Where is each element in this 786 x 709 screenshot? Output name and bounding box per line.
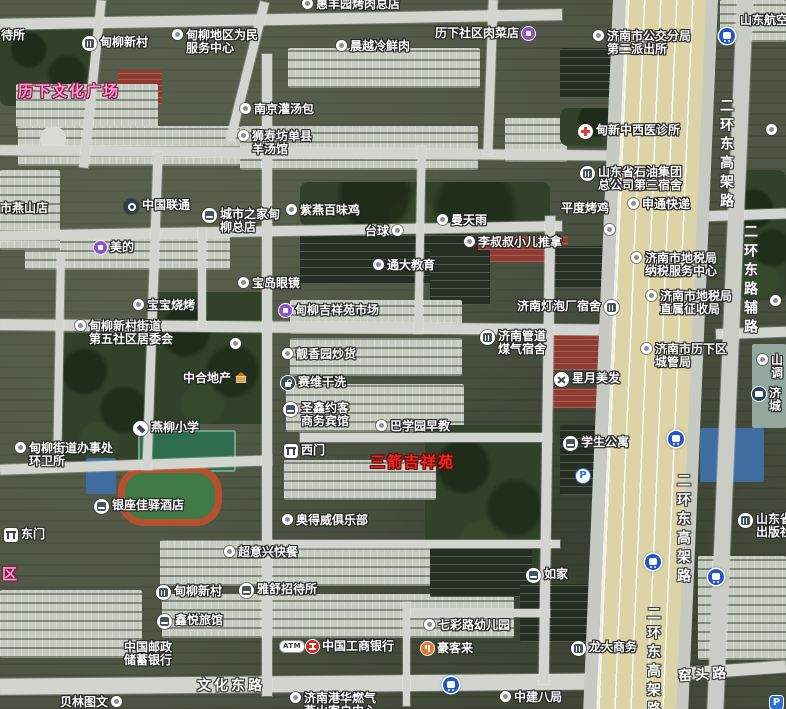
map-poi[interactable]: 豪客来	[421, 642, 473, 655]
map-poi[interactable]: 济南灯泡厂宿舍	[517, 300, 619, 315]
map-poi[interactable]: 赛维干洗	[281, 376, 346, 390]
building-icon	[82, 36, 97, 51]
map-poi[interactable]: 东门	[4, 528, 45, 542]
poi-dot-icon	[240, 103, 251, 114]
poi-label: 东门	[21, 528, 45, 541]
area-label: 历下文化广场	[18, 80, 120, 101]
poi-label: 济南市历下区城管局	[655, 343, 727, 369]
map-poi[interactable]: 山东航空	[740, 14, 786, 27]
map-poi[interactable]: 甸柳吉祥苑市场	[279, 304, 379, 317]
map-poi[interactable]: 济南市地税局直属征收局	[646, 290, 732, 316]
poi-dot-icon	[290, 692, 301, 703]
poi-label: 中国邮政储蓄银行	[124, 641, 172, 667]
map-poi[interactable]: 市燕山店	[0, 202, 48, 215]
map-poi[interactable]: 山东省石油集团总公司第三宿舍	[580, 166, 682, 192]
atm-badge-icon: ATM	[280, 641, 304, 652]
poi-dot-icon	[631, 252, 642, 263]
map-poi[interactable]: 中建八局	[500, 691, 562, 704]
map-poi[interactable]: 中国工商银行	[306, 640, 394, 653]
metro-station-icon	[708, 569, 724, 585]
road-segment	[408, 609, 550, 617]
map-poi[interactable]: 学生公寓	[563, 436, 629, 451]
map-poi[interactable]: 西门	[284, 444, 325, 458]
laundry-bag-icon	[281, 376, 295, 390]
poi-label: 狮寿坊单县羊汤馆	[252, 130, 312, 156]
map-poi[interactable]	[719, 28, 735, 44]
hotel-icon	[239, 583, 254, 598]
map-poi[interactable]: 济南市地税局纳税服务中心	[631, 252, 717, 278]
map-poi[interactable]	[645, 554, 661, 570]
poi-dot-icon	[133, 299, 144, 310]
poi-label: 城市之家甸柳总店	[220, 208, 280, 234]
poi-label: 豪客来	[437, 642, 473, 655]
map-poi[interactable]: 甸柳街道办事处环卫所	[15, 442, 113, 468]
building-icon	[571, 641, 586, 656]
metro-station-icon	[443, 677, 459, 693]
map-poi[interactable]: P	[770, 696, 783, 709]
map-poi[interactable]: 雅舒招待所	[239, 583, 317, 598]
map-poi[interactable]: 甸柳新村街道第五社区居委会	[75, 320, 173, 346]
map-poi[interactable]: 山东省出版社	[738, 513, 786, 539]
poi-label: 甸新中西医诊所	[596, 124, 680, 137]
poi-dot-icon	[376, 420, 387, 431]
road-segment	[300, 433, 552, 442]
poi-dot-icon	[282, 514, 293, 525]
shop-icon	[94, 241, 107, 254]
area-label: 三箭吉祥苑	[370, 451, 455, 472]
building-icon	[738, 513, 753, 528]
map-poi[interactable]: 城市之家甸柳总店	[202, 208, 280, 234]
map-poi[interactable]	[708, 569, 724, 585]
map-poi[interactable]: 巴学园早教	[376, 420, 450, 433]
poi-label: 巴学园早教	[390, 420, 450, 433]
poi-label: 甸柳吉祥苑市场	[295, 304, 379, 317]
hotel-icon	[283, 402, 298, 417]
poi-dot-icon	[282, 348, 293, 359]
shop-icon	[279, 304, 292, 317]
poi-dot-icon	[424, 619, 435, 630]
poi-label: 济南灯泡厂宿舍	[517, 300, 601, 313]
poi-dot-icon	[641, 343, 652, 354]
poi-label: 鑫悦旅馆	[175, 614, 223, 627]
building-block-dark	[430, 250, 490, 305]
map-poi[interactable]: 济南市历下区城管局	[641, 343, 727, 369]
poi-dot-icon	[604, 224, 615, 235]
school-icon	[133, 421, 148, 436]
road-label: 二环东路辅路	[740, 224, 760, 338]
poi-label: 赛维干洗	[298, 376, 346, 389]
poi-dot-icon	[286, 204, 297, 215]
map-poi[interactable]: 济城	[752, 387, 781, 413]
poi-label: 宝宝烧烤	[147, 299, 195, 312]
poi-label: 美的	[110, 241, 134, 254]
poi-dot-icon	[437, 214, 448, 225]
map-poi[interactable]: ATM	[280, 641, 304, 652]
metro-station-icon	[719, 28, 735, 44]
map-poi[interactable]	[766, 124, 777, 135]
poi-dot-icon	[593, 30, 604, 41]
map-poi[interactable]: 惠丰园烤肉总店	[302, 0, 400, 11]
hotel-icon	[563, 436, 578, 451]
building-block-dark	[430, 545, 532, 597]
running-track	[118, 466, 222, 526]
hotel-icon	[157, 614, 172, 629]
hospital-cross-icon	[578, 124, 593, 139]
poi-dot-icon	[336, 40, 347, 51]
poi-label: 济南市地税局直属征收局	[660, 290, 732, 316]
poi-label: 甸柳新村	[100, 36, 148, 49]
poi-dot-icon	[238, 277, 249, 288]
building-block	[288, 48, 480, 88]
gate-icon	[284, 444, 298, 458]
poi-dot-icon	[302, 0, 313, 9]
poi-dot-icon	[500, 691, 511, 702]
poi-dot-icon	[464, 236, 475, 247]
poi-label: 七彩路幼儿园	[438, 619, 510, 632]
poi-label: 贝林图文	[60, 696, 108, 709]
realty-house-icon	[234, 372, 247, 385]
building-icon	[604, 300, 619, 315]
map-poi[interactable]	[668, 431, 684, 447]
poi-label: 历下社区肉菜店	[435, 27, 519, 40]
map-poi[interactable]: 济南市公交分局第二派出所	[593, 30, 691, 56]
map-poi[interactable]: 鑫悦旅馆	[157, 614, 223, 629]
building-icon	[580, 166, 595, 181]
poi-dot-icon	[628, 198, 639, 209]
shop-icon	[522, 27, 535, 40]
poi-label: 甸柳新村街道第五社区居委会	[89, 320, 173, 346]
map-poi[interactable]: 靓香园炒货	[282, 348, 356, 361]
poi-label: 晨越冷鲜肉	[350, 40, 410, 53]
map-poi[interactable]: P	[576, 469, 590, 483]
poi-label: 济城	[769, 387, 781, 413]
hotel-icon	[526, 568, 541, 583]
poi-label: 星月美发	[572, 372, 620, 385]
restaurant-icon	[421, 642, 434, 655]
map-poi[interactable]: 龙大商务	[571, 641, 637, 656]
hotel-icon	[202, 208, 217, 223]
poi-label: 圣鑫约客商务宾馆	[301, 402, 349, 428]
poi-label: 如家	[544, 568, 568, 581]
road-segment	[483, 0, 497, 154]
metro-station-icon	[645, 554, 661, 570]
map-poi[interactable]: 甸柳地区为民服务中心	[172, 29, 258, 55]
map-poi[interactable]: 奥得威俱乐部	[282, 514, 368, 527]
map-poi[interactable]: 申通快递	[628, 198, 690, 211]
poi-dot-icon	[770, 295, 781, 306]
poi-label: 通大教育	[387, 259, 435, 272]
road-segment	[403, 602, 410, 706]
poi-label: 济南市公交分局第二派出所	[607, 30, 691, 56]
poi-label: 济南管道煤气宿舍	[498, 330, 546, 356]
road-segment	[198, 228, 206, 328]
building-icon	[480, 330, 495, 345]
scissors-icon	[554, 372, 569, 387]
poi-label: 靓香园炒货	[296, 348, 356, 361]
map-poi[interactable]: 台球	[365, 225, 403, 238]
map-poi[interactable]: 济南管道煤气宿舍	[480, 330, 546, 356]
poi-dot-icon	[230, 338, 241, 349]
poi-dot-icon	[646, 290, 657, 301]
map-poi[interactable]: 甸柳新村	[156, 585, 222, 600]
building-block	[0, 590, 142, 658]
map-poi[interactable]	[443, 677, 459, 693]
map-poi[interactable]: 紫燕百味鸡	[286, 204, 360, 217]
poi-label: 西门	[301, 444, 325, 457]
hotel-icon	[94, 499, 109, 514]
poi-label: 中国工商银行	[322, 640, 394, 653]
map-poi[interactable]: 宝宝烧烤	[133, 299, 195, 312]
poi-label: 紫燕百味鸡	[300, 204, 360, 217]
poi-label: 市燕山店	[0, 202, 48, 215]
poi-dot-icon	[766, 124, 777, 135]
map-poi[interactable]: 甸新中西医诊所	[578, 124, 680, 139]
satellite-map[interactable]: 二环东高架路二环东路辅路二环东高架路二环东高架路窑头路文化东路历下文化广场区三箭…	[0, 0, 786, 709]
poi-dot-icon	[15, 442, 26, 453]
poi-dot-icon	[111, 696, 122, 707]
poi-label: 惠丰园烤肉总店	[316, 0, 400, 11]
poi-label: 李叔叔小儿推拿	[478, 236, 562, 249]
poi-label: 雅舒招待所	[257, 583, 317, 596]
map-poi[interactable]: 中合地产	[183, 372, 247, 385]
map-poi[interactable]: 晨越冷鲜肉	[336, 40, 410, 53]
poi-label: 银座佳驿酒店	[112, 499, 184, 512]
map-poi[interactable]	[230, 338, 241, 349]
poi-label: 中国联通	[142, 199, 190, 212]
gate-icon	[4, 528, 18, 542]
icbc-bank-icon	[306, 640, 319, 653]
poi-dot-icon	[392, 225, 403, 236]
poi-label: 台球	[365, 225, 389, 238]
poi-label: 学生公寓	[581, 436, 629, 449]
map-poi[interactable]: 历下社区肉菜店	[435, 27, 535, 40]
poi-label: 山东航空	[740, 14, 786, 27]
poi-dot-icon	[224, 546, 235, 557]
poi-dot-icon	[373, 259, 384, 270]
poi-label: 奥得威俱乐部	[296, 514, 368, 527]
parking-icon: P	[770, 696, 783, 709]
building-icon	[156, 585, 171, 600]
poi-dot-icon	[172, 29, 183, 40]
poi-label: 龙大商务	[589, 641, 637, 654]
map-poi[interactable]: 济南港华燃气燕山客户中心	[290, 692, 376, 709]
poi-label: 中合地产	[183, 372, 231, 385]
poi-dot-icon	[238, 130, 249, 141]
map-poi[interactable]: 甸柳新村	[82, 36, 148, 51]
poi-label: 山东省石油集团总公司第三宿舍	[598, 166, 682, 192]
map-poi[interactable]: 山调	[757, 354, 783, 380]
poi-label: 济南港华燃气燕山客户中心	[304, 692, 376, 709]
poi-label: 甸柳地区为民服务中心	[186, 29, 258, 55]
map-poi[interactable]: 贝林图文	[60, 696, 122, 709]
map-poi[interactable]: 待所	[1, 29, 25, 42]
poi-label: 甸柳街道办事处环卫所	[29, 442, 113, 468]
china-unicom-icon	[124, 199, 139, 214]
poi-label: 宝岛眼镜	[252, 277, 300, 290]
map-poi[interactable]	[770, 295, 781, 306]
area-label: 区	[2, 563, 19, 584]
poi-label: 超意兴快餐	[238, 546, 298, 559]
map-poi[interactable]: 七彩路幼儿园	[424, 619, 510, 632]
parking-icon: P	[576, 469, 590, 483]
road-label: 文化东路	[197, 675, 265, 695]
map-poi[interactable]: 宝岛眼镜	[238, 277, 300, 290]
poi-label: 燕柳小学	[151, 421, 199, 434]
map-poi[interactable]: 如家	[526, 568, 568, 583]
map-poi[interactable]: 中国联通	[124, 199, 190, 214]
poi-label: 中建八局	[514, 691, 562, 704]
poi-dot-icon	[75, 320, 86, 331]
map-poi[interactable]: 狮寿坊单县羊汤馆	[238, 130, 312, 156]
road-label: 二环东高架路	[643, 606, 663, 709]
map-poi[interactable]: 平度烤鸡	[561, 202, 609, 215]
poi-label: 山东省出版社	[756, 513, 786, 539]
road-label: 二环东高架路	[716, 98, 736, 212]
map-poi[interactable]: 李叔叔小儿推拿	[464, 236, 562, 249]
map-poi[interactable]: 通大教育	[373, 259, 435, 272]
road-segment	[268, 540, 560, 548]
poi-label: 平度烤鸡	[561, 202, 609, 215]
poi-dot-icon	[757, 354, 768, 365]
bus-stop-icon	[752, 387, 766, 401]
metro-station-icon	[668, 431, 684, 447]
map-poi[interactable]: 中国邮政储蓄银行	[124, 641, 172, 667]
map-poi[interactable]: 曼天雨	[437, 214, 487, 227]
map-poi[interactable]: 圣鑫约客商务宾馆	[283, 402, 349, 428]
map-poi[interactable]: 星月美发	[554, 372, 620, 387]
poi-label: 待所	[1, 29, 25, 42]
road-label: 二环东高架路	[673, 473, 693, 587]
map-poi[interactable]: 燕柳小学	[133, 421, 199, 436]
poi-label: 曼天雨	[451, 214, 487, 227]
map-poi[interactable]: 南京灌汤包	[240, 103, 314, 116]
poi-label: 济南市地税局纳税服务中心	[645, 252, 717, 278]
road-label: 窑头路	[677, 662, 729, 686]
map-poi[interactable]: 美的	[94, 241, 134, 254]
poi-label: 南京灌汤包	[254, 103, 314, 116]
poi-label: 山调	[771, 354, 783, 380]
map-poi[interactable]: 超意兴快餐	[224, 546, 298, 559]
poi-label: 申通快递	[642, 198, 690, 211]
map-poi[interactable]: 银座佳驿酒店	[94, 499, 184, 514]
map-poi[interactable]	[604, 224, 615, 235]
poi-label: 甸柳新村	[174, 585, 222, 598]
